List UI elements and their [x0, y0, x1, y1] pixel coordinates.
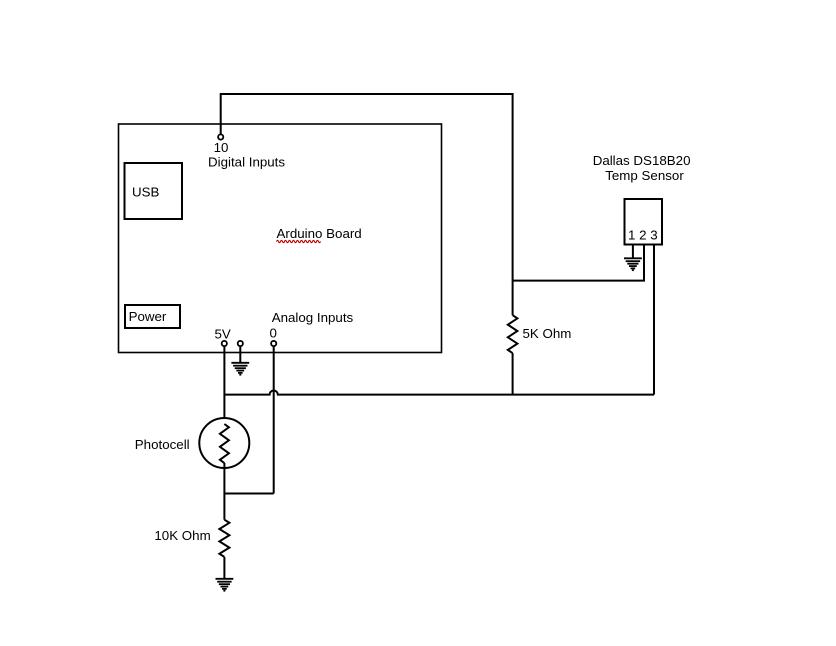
svg-text:10K Ohm: 10K Ohm: [154, 528, 210, 543]
svg-text:Power: Power: [129, 309, 167, 324]
svg-text:Digital Inputs: Digital Inputs: [208, 155, 285, 170]
svg-text:Temp Sensor: Temp Sensor: [605, 168, 684, 183]
svg-text:Analog Inputs: Analog Inputs: [272, 310, 354, 325]
svg-text:0: 0: [269, 326, 276, 341]
svg-text:5V: 5V: [215, 326, 231, 341]
svg-text:USB: USB: [132, 185, 160, 200]
svg-text:Photocell: Photocell: [135, 437, 190, 452]
svg-text:5K Ohm: 5K Ohm: [523, 326, 572, 341]
svg-text:Dallas DS18B20: Dallas DS18B20: [593, 153, 691, 168]
svg-text:1 2 3: 1 2 3: [628, 228, 658, 243]
svg-text:10: 10: [214, 140, 229, 155]
svg-text:Arduino Board: Arduino Board: [277, 226, 362, 241]
